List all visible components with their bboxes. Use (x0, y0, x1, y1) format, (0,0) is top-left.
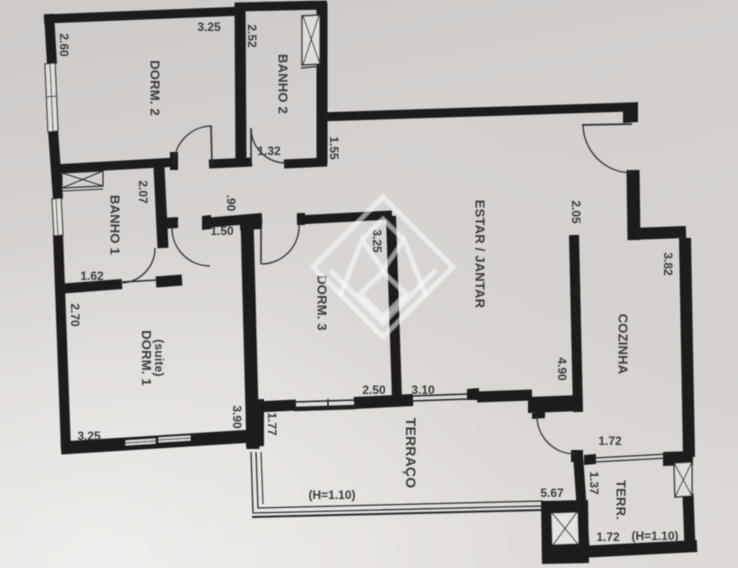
svg-text:1.37: 1.37 (587, 471, 601, 495)
svg-text:BANHO 1: BANHO 1 (108, 195, 123, 255)
svg-text:TERR.: TERR. (614, 480, 629, 520)
svg-text:2.50: 2.50 (362, 383, 386, 397)
svg-text:.90: .90 (224, 195, 238, 212)
svg-text:1.72: 1.72 (596, 530, 620, 544)
svg-text:1.32: 1.32 (257, 144, 281, 158)
svg-text:3.82: 3.82 (661, 252, 675, 276)
svg-text:2.05: 2.05 (569, 200, 583, 224)
svg-text:4.90: 4.90 (555, 357, 569, 381)
svg-text:(H=1.10): (H=1.10) (631, 529, 678, 543)
svg-text:TERRAÇO: TERRAÇO (403, 418, 419, 489)
svg-text:1.62: 1.62 (80, 269, 104, 283)
svg-text:COZINHA: COZINHA (616, 314, 631, 375)
svg-text:2.07: 2.07 (136, 180, 150, 204)
svg-text:3.25: 3.25 (197, 20, 221, 34)
svg-text:1.50: 1.50 (210, 224, 234, 238)
svg-text:1.77: 1.77 (265, 412, 279, 436)
svg-text:3.25: 3.25 (77, 429, 101, 443)
svg-text:BANHO 2: BANHO 2 (276, 54, 291, 114)
svg-text:1.55: 1.55 (327, 136, 341, 160)
svg-text:2.52: 2.52 (245, 24, 259, 48)
svg-text:DORM. 1: DORM. 1 (139, 330, 154, 386)
svg-text:5.67: 5.67 (540, 486, 564, 500)
svg-text:3.10: 3.10 (411, 383, 435, 397)
svg-text:3.90: 3.90 (230, 405, 244, 429)
svg-text:(H=1.10): (H=1.10) (308, 488, 355, 502)
svg-text:DORM. 2: DORM. 2 (148, 60, 163, 116)
svg-text:2.70: 2.70 (68, 303, 82, 327)
svg-text:1.72: 1.72 (598, 434, 622, 448)
svg-text:ESTAR / JANTAR: ESTAR / JANTAR (473, 200, 488, 309)
svg-text:2.60: 2.60 (57, 33, 71, 57)
